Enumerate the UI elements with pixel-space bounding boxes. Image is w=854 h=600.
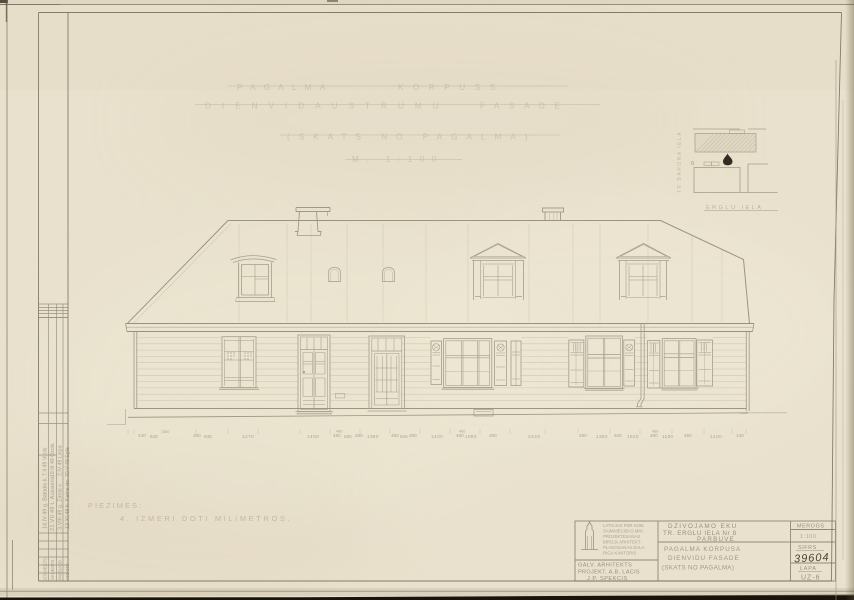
svg-text:1400: 1400 [710,434,722,439]
svg-text:480: 480 [650,433,658,438]
svg-text:SAIMNIECIBAS MIN.: SAIMNIECIBAS MIN. [603,529,644,534]
svg-text:480: 480 [489,433,497,438]
svg-text:1080: 1080 [465,434,477,439]
svg-text:PROJEKTESANAS: PROJEKTESANAS [603,534,640,539]
svg-text:TR.BARONA IELA: TR.BARONA IELA [677,131,683,193]
svg-text:KORPUSS: KORPUSS [398,83,505,92]
svg-text:480: 480 [684,433,692,438]
svg-text:21.VII 49 t. Ausainis: 21.VII 49 t. Ausainis [50,476,56,531]
svg-text:480: 480 [336,430,342,434]
svg-text:2440: 2440 [528,434,541,439]
svg-text:PARBAUD.: PARBAUD. [58,559,63,580]
svg-text:480: 480 [391,433,399,438]
svg-text:SIFRS: SIFRS [798,545,817,551]
svg-text:19.III 49 Ozols: 19.III 49 Ozols [50,443,56,477]
svg-text:1400: 1400 [431,434,443,439]
svg-text:PARBUVE: PARBUVE [697,536,735,543]
svg-text:1:100: 1:100 [800,534,817,540]
svg-text:940: 940 [204,434,212,439]
svg-text:J.P. SPEKCIS: J.P. SPEKCIS [587,576,628,582]
svg-text:3.VIII 49 g. Zirnis v.: 3.VIII 49 g. Zirnis v. [58,483,64,530]
svg-text:UZ-6: UZ-6 [801,575,821,582]
svg-text:480: 480 [409,433,417,438]
svg-text:640: 640 [150,434,158,439]
svg-text:940: 940 [400,434,408,439]
svg-text:LATVIJAS PSR KOM.: LATVIJAS PSR KOM. [603,523,645,528]
svg-text:39604: 39604 [794,551,830,565]
svg-text:1270: 1270 [242,434,254,439]
svg-text:480: 480 [456,433,464,438]
svg-text:PAGALMA KORPUSA: PAGALMA KORPUSA [664,546,741,553]
svg-text:1400: 1400 [307,434,319,439]
svg-text:480: 480 [355,433,363,438]
svg-text:ATDOTS: ATDOTS [65,563,70,580]
svg-text:1520: 1520 [627,434,639,439]
svg-text:4. IZMERI DOTI MILIMETROS.: 4. IZMERI DOTI MILIMETROS. [120,514,292,523]
svg-text:480: 480 [193,433,201,438]
svg-text:480: 480 [652,430,658,434]
svg-text:ERGLU IELA: ERGLU IELA [706,205,763,211]
svg-text:480: 480 [579,433,587,438]
svg-text:30.V 49 Egle: 30.V 49 Egle [65,447,71,477]
svg-text:540: 540 [614,433,622,438]
svg-text:IZSNIEGTS: IZSNIEGTS [43,558,48,580]
svg-text:FASADE.: FASADE. [480,102,581,111]
svg-text:LAPA: LAPA [800,566,817,572]
svg-text:7.II 49 Vitols: 7.II 49 Vitols [43,447,49,476]
svg-text:DIENVIDU FASADE: DIENVIDU FASADE [668,555,740,562]
svg-text:MEROGS: MEROGS [797,524,825,530]
svg-text:PROJEKT. A.B. LACIS: PROJEKT. A.B. LACIS [578,570,640,576]
svg-text:580: 580 [344,434,352,439]
svg-text:DIENVIDAUSTRUMU: DIENVIDAUSTRUMU [205,102,450,111]
svg-text:1380: 1380 [596,434,608,439]
svg-text:1150: 1150 [662,434,674,439]
svg-text:(SKATS NO PAGALMA): (SKATS NO PAGALMA) [287,133,537,142]
svg-text:(SKATS NO PAGALMA): (SKATS NO PAGALMA) [662,565,734,572]
svg-text:GALV. ARHITEKTS: GALV. ARHITEKTS [578,563,632,569]
svg-text:PIEZIMES:: PIEZIMES: [88,501,143,510]
svg-text:RIGA KANTORIS: RIGA KANTORIS [603,551,636,556]
svg-text:14.IV 49 g. Balodis k.: 14.IV 49 g. Balodis k. [43,477,49,529]
svg-text:800: 800 [163,430,169,434]
svg-text:2.IV 49 Liepa: 2.IV 49 Liepa [58,445,64,476]
svg-text:140: 140 [736,433,744,438]
svg-text:SANEMTS: SANEMTS [50,560,55,580]
svg-text:PLANOSANAS DALA: PLANOSANAS DALA [603,545,645,550]
svg-text:BIROJA ARHITEKT.: BIROJA ARHITEKT. [603,540,641,545]
svg-text:440: 440 [138,433,146,438]
svg-text:480: 480 [333,433,341,438]
svg-text:12.XI 49 k. Kalns dz.: 12.XI 49 k. Kalns dz. [65,478,71,529]
svg-text:1380: 1380 [367,434,379,439]
svg-text:PAGALMA: PAGALMA [237,83,333,92]
svg-text:480: 480 [459,430,465,434]
